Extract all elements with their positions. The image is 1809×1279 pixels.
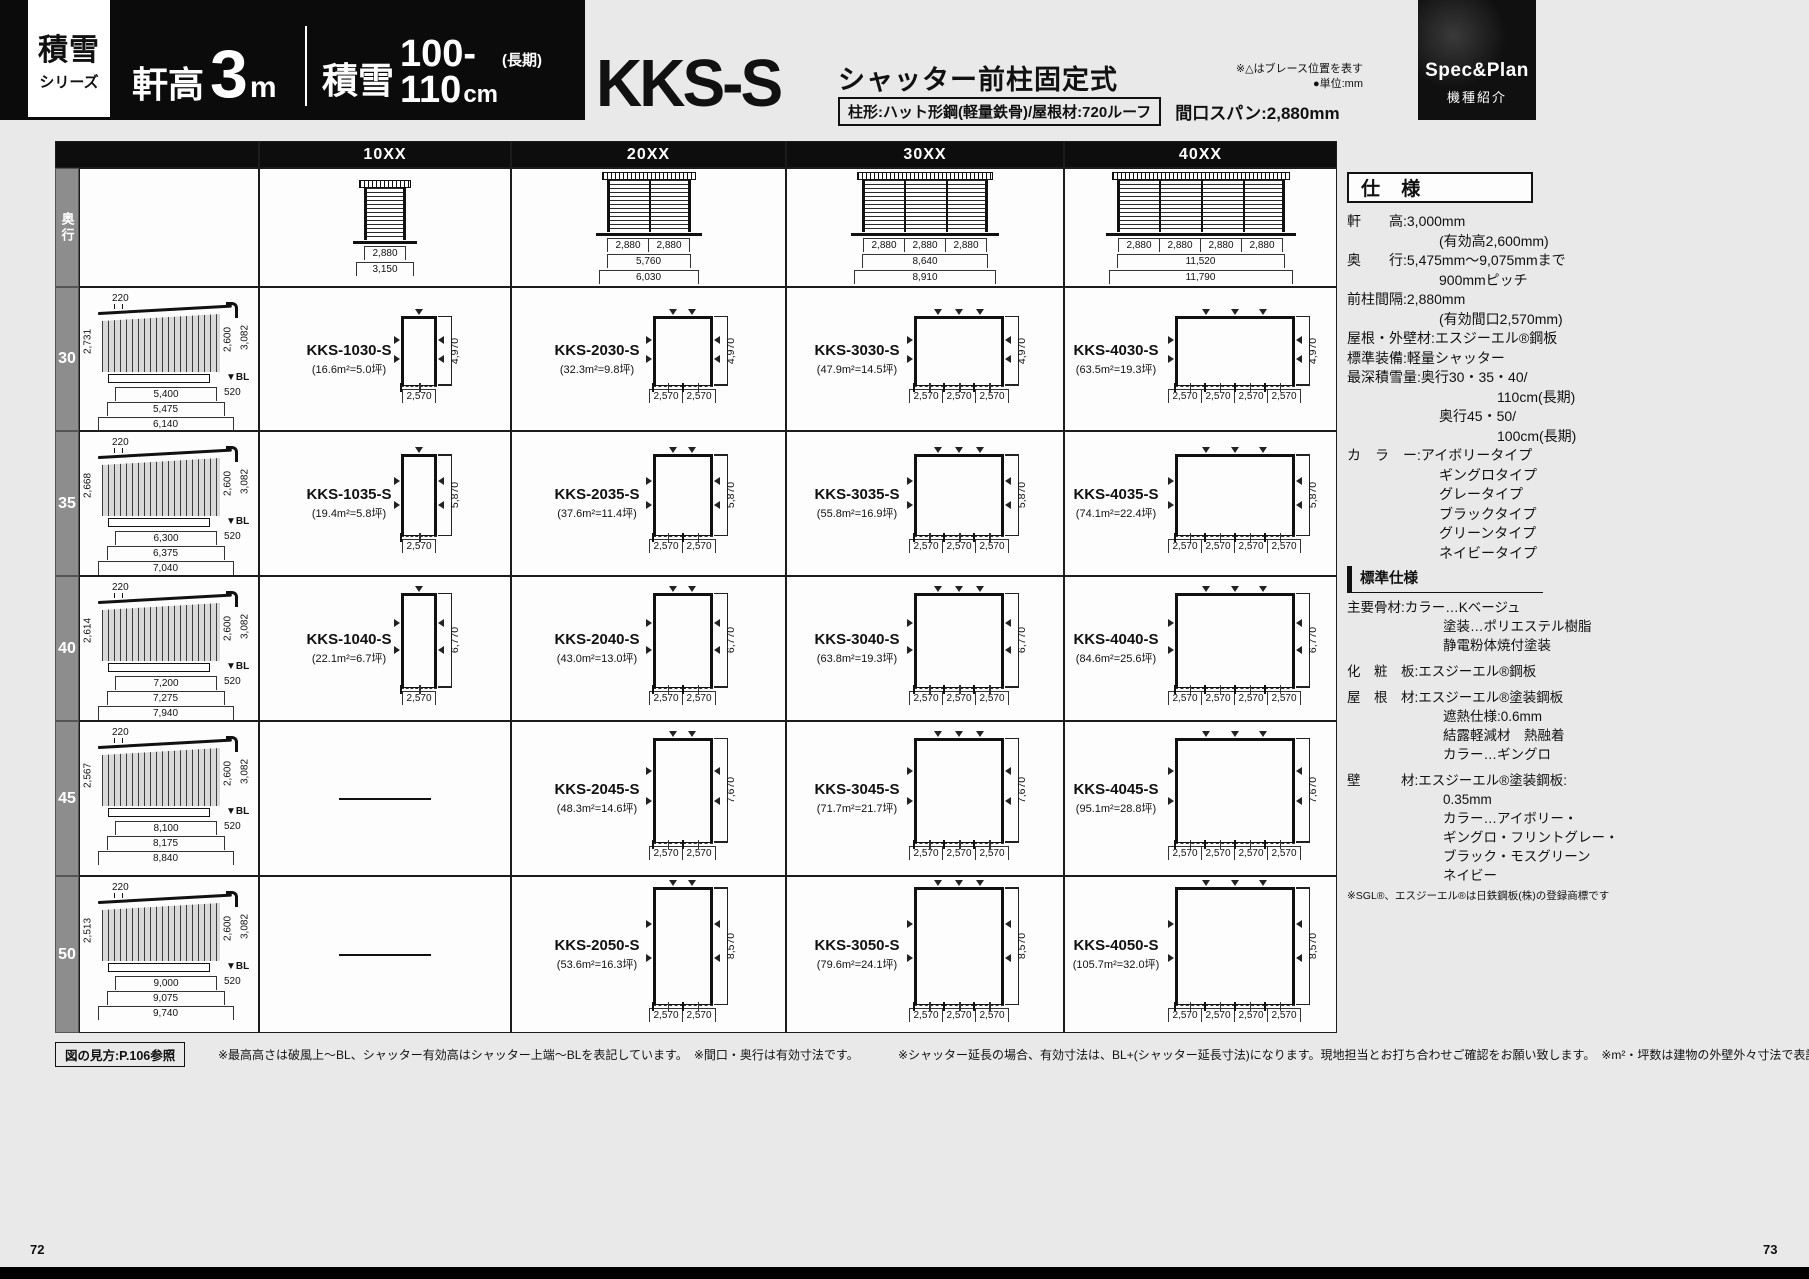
width-dim-3: 8,840	[98, 851, 234, 865]
bay-dimension: 2,880	[364, 246, 406, 260]
spec-line: 壁 材:エスジーエル®塗装鋼板:	[1347, 771, 1562, 790]
plan-depth-dimension: 8,570	[1016, 923, 1028, 969]
front-post-centerline	[944, 1005, 974, 1006]
brace-triangle-left	[646, 501, 652, 509]
brace-triangle-top	[976, 731, 984, 737]
model-name: KKS-3050-S	[811, 937, 903, 954]
spec-panel-title: 仕 様	[1347, 172, 1533, 203]
model-area: (74.1m²=22.4坪)	[1070, 505, 1162, 521]
brace-triangle-left	[1168, 619, 1174, 627]
elevation-cell-10XX: 2,880 3,150	[259, 168, 511, 287]
spec-line: 0.35mm	[1347, 790, 1562, 809]
plan-diagram: 6,770 2,570	[401, 593, 437, 705]
elevation-cell-30XX: 2,8802,8802,8808,640 8,910	[786, 168, 1064, 287]
spec-line: 遮熱仕様:0.6mm	[1347, 707, 1562, 726]
bay-dimension: 2,880	[945, 238, 987, 252]
plan-bay-dimension: 2,570	[1201, 539, 1235, 553]
bl-marker: ▼BL	[226, 372, 249, 383]
plan-bay-dimension: 2,570	[975, 846, 1009, 860]
model-label: KKS-2035-S (37.6m²=11.4坪)	[551, 486, 643, 521]
model-cell-KKS-3035-S: KKS-3035-S (55.8m²=16.9坪) 5,870 2,5702,5…	[786, 431, 1064, 576]
model-label: KKS-4050-S (105.7m²=32.0坪)	[1070, 937, 1162, 972]
model-label: KKS-4030-S (63.5m²=19.3坪)	[1070, 342, 1162, 377]
brace-triangle-left	[646, 797, 652, 805]
side-elevation-cell-50: 220 2,513 2,600 3,082 ▼BL 520 9,000 9,07…	[79, 876, 259, 1033]
max-height-dim: 3,082	[240, 607, 251, 647]
shutter-side-hatch	[102, 903, 220, 961]
plan-depth-dimension: 6,770	[449, 617, 461, 663]
ground-line	[353, 241, 417, 244]
spec-line: 塗装…ポリエステル樹脂	[1347, 617, 1562, 636]
brace-triangle-top	[688, 731, 696, 737]
brace-triangle-top	[688, 309, 696, 315]
brace-triangle-top	[976, 586, 984, 592]
front-post-centerline	[974, 843, 1004, 844]
model-area: (84.6m²=25.6坪)	[1070, 650, 1162, 666]
model-cell-KKS-1030-S: KKS-1030-S (16.6m²=5.0坪) 4,970 2,570	[259, 287, 511, 431]
brace-triangle-top	[1231, 731, 1239, 737]
brace-triangle-top	[1202, 880, 1210, 886]
plan-outline	[653, 316, 713, 386]
plan-bay-dimension: 2,570	[975, 1008, 1009, 1022]
model-label: KKS-2030-S (32.3m²=9.8坪)	[551, 342, 643, 377]
plan-bay-dimension: 2,570	[1267, 1008, 1301, 1022]
gutter-hook	[226, 302, 238, 318]
plan-bay-dimension: 2,570	[682, 1008, 716, 1022]
bl-marker: ▼BL	[226, 661, 249, 672]
model-area: (63.8m²=19.3坪)	[811, 650, 903, 666]
front-elevation-20XX: 2,8802,8805,760 6,030	[596, 172, 702, 284]
model-cell-content: KKS-4045-S (95.1m²=28.8坪) 7,670 2,5702,5…	[1065, 722, 1336, 875]
brace-triangle-left	[1168, 355, 1174, 363]
bl-marker: ▼BL	[226, 516, 249, 527]
spec-line: ネイビー	[1347, 866, 1562, 885]
width-dim-1: 9,000	[115, 976, 217, 990]
model-area: (71.7m²=21.7坪)	[811, 800, 903, 816]
front-post-centerline	[974, 536, 1004, 537]
brace-triangle-left	[646, 619, 652, 627]
elevation-cell-20XX: 2,8802,8805,760 6,030	[511, 168, 786, 287]
model-cell-KKS-2040-S: KKS-2040-S (43.0m²=13.0坪) 6,770 2,5702,5…	[511, 576, 786, 721]
brace-triangle-top	[1202, 309, 1210, 315]
no-model-dash	[339, 954, 431, 956]
width-dim-1: 7,200	[115, 676, 217, 690]
brace-triangle-left	[394, 619, 400, 627]
front-post-centerline	[401, 386, 437, 387]
standard-spec-title: 標準仕様	[1347, 566, 1543, 593]
brace-triangle-left	[1168, 336, 1174, 344]
spec-line: 奥 行:5,475mm〜9,075mmまで	[1347, 251, 1562, 271]
row-depth-label: 30	[58, 350, 76, 368]
brace-triangle-left	[1168, 646, 1174, 654]
spec-line: ネイビータイプ	[1347, 544, 1562, 564]
front-post-centerline	[1175, 843, 1205, 844]
brace-triangle-left	[646, 355, 652, 363]
model-area: (32.3m²=9.8坪)	[551, 361, 643, 377]
front-post-centerline	[1175, 386, 1205, 387]
spec-line: 奥行45・50/	[1347, 407, 1562, 427]
row-label-35: 35	[55, 431, 79, 576]
plan-depth-dimension: 5,870	[1307, 472, 1319, 518]
width-dim-1: 8,100	[115, 821, 217, 835]
model-cell-KKS-2045-S: KKS-2045-S (48.3m²=14.6坪) 7,670 2,5702,5…	[511, 721, 786, 876]
spec-line: ギングロ・フリントグレー・	[1347, 828, 1562, 847]
brace-triangle-left	[1168, 501, 1174, 509]
plan-bay-dimension: 2,570	[1201, 1008, 1235, 1022]
brace-triangle-top	[415, 586, 423, 592]
front-post-centerline	[653, 1005, 683, 1006]
brace-triangle-top	[976, 447, 984, 453]
spec-line: 主要骨材:カラー…Kベージュ	[1347, 598, 1562, 617]
spec-line: グレータイプ	[1347, 485, 1562, 505]
shutter-front	[607, 180, 691, 232]
shutter-bay	[1201, 180, 1243, 232]
front-post-centerline	[1175, 688, 1205, 689]
diagram-reference-box: 図の見方:P.106参照	[55, 1042, 185, 1067]
plan-outline	[1175, 738, 1295, 843]
plan-outline	[1175, 454, 1295, 536]
foundation	[108, 963, 210, 972]
width-dim-2: 7,275	[107, 691, 225, 705]
left-height-dim: 2,567	[83, 756, 94, 796]
spec-line: カ ラ ー:アイボリータイプ	[1347, 446, 1562, 466]
plan-outline	[914, 593, 1004, 688]
front-post-centerline	[1265, 688, 1295, 689]
shutter-front	[1117, 180, 1285, 232]
plan-bay-dimension: 2,570	[682, 691, 716, 705]
front-elevation-40XX: 2,8802,8802,8802,88011,520 11,790	[1106, 172, 1296, 284]
brace-triangle-top	[688, 586, 696, 592]
left-height-dim: 2,731	[83, 322, 94, 362]
plan-depth-dimension: 5,870	[1016, 472, 1028, 518]
plan-bay-dimension: 2,570	[1201, 691, 1235, 705]
brace-triangle-top	[934, 731, 942, 737]
front-post-centerline	[1235, 536, 1265, 537]
brace-triangle-left	[907, 954, 913, 962]
model-name: KKS-4030-S	[1070, 342, 1162, 359]
model-cell-content: KKS-1030-S (16.6m²=5.0坪) 4,970 2,570	[260, 288, 510, 430]
gutter-hook	[226, 891, 238, 907]
width-dim-2: 9,075	[107, 991, 225, 1005]
model-cell-content: KKS-2035-S (37.6m²=11.4坪) 5,870 2,5702,5…	[512, 432, 785, 575]
page-number-left: 72	[30, 1242, 44, 1257]
plan-outline	[1175, 887, 1295, 1005]
side-elevation-cell-35: 220 2,668 2,600 3,082 ▼BL 520 6,300 6,37…	[79, 431, 259, 576]
front-post-centerline	[653, 536, 683, 537]
front-post-centerline	[914, 386, 944, 387]
brace-triangle-top	[1202, 586, 1210, 592]
front-post-centerline	[944, 536, 974, 537]
shutter-side-hatch	[102, 603, 220, 661]
model-name: KKS-2050-S	[551, 937, 643, 954]
model-cell-KKS-2030-S: KKS-2030-S (32.3m²=9.8坪) 4,970 2,5702,57…	[511, 287, 786, 431]
foundation	[108, 374, 210, 383]
bay-dimension: 2,880	[1241, 238, 1283, 252]
bay-dimension: 2,880	[1200, 238, 1242, 252]
row-label-40: 40	[55, 576, 79, 721]
brace-triangle-left	[646, 477, 652, 485]
overhang-dimension: 220	[112, 882, 129, 898]
catalog-page: 積雪 シリーズ 軒高 3 m 積雪 100- 110 cm (長期) KKS-S…	[0, 0, 1809, 1279]
brace-triangle-left	[907, 797, 913, 805]
model-label: KKS-1040-S (22.1m²=6.7坪)	[303, 631, 395, 666]
plan-diagram: 5,870 2,5702,570	[649, 454, 716, 553]
row-depth-label: 45	[58, 790, 76, 808]
width-dimensions: 7,200 7,275 7,940	[80, 675, 252, 720]
model-cell-content: KKS-3030-S (47.9m²=14.5坪) 4,970 2,5702,5…	[787, 288, 1063, 430]
brace-triangle-left	[1168, 767, 1174, 775]
spec-lines: 軒 高:3,000mm(有効高2,600mm)奥 行:5,475mm〜9,075…	[1347, 212, 1562, 563]
model-name: KKS-3045-S	[811, 781, 903, 798]
spec-line: カラー…アイボリー・	[1347, 809, 1562, 828]
roof-crest	[602, 172, 696, 180]
front-post-centerline	[914, 843, 944, 844]
model-cell-content: KKS-3040-S (63.8m²=19.3坪) 6,770 2,5702,5…	[787, 577, 1063, 720]
plan-depth-dimension: 6,770	[1016, 617, 1028, 663]
brace-triangle-top	[1259, 309, 1267, 315]
model-area: (53.6m²=16.3坪)	[551, 956, 643, 972]
left-height-dim: 2,668	[83, 466, 94, 506]
spec-line: 100cm(長期)	[1347, 427, 1562, 447]
front-post-centerline	[1205, 843, 1235, 844]
standard-spec-lines: 主要骨材:カラー…Kベージュ塗装…ポリエステル樹脂静電粉体焼付塗装化 粧 板:エ…	[1347, 598, 1562, 885]
brace-triangle-top	[1202, 447, 1210, 453]
front-post-centerline	[1205, 688, 1235, 689]
model-cell-content: KKS-1040-S (22.1m²=6.7坪) 6,770 2,570	[260, 577, 510, 720]
front-post-centerline	[914, 1005, 944, 1006]
brace-triangle-top	[976, 309, 984, 315]
empty-model-cell	[259, 721, 511, 876]
brace-triangle-top	[934, 447, 942, 453]
plan-bay-dimension: 2,570	[649, 389, 683, 403]
plan-diagram: 4,970 2,5702,570	[649, 316, 716, 403]
shutter-bay	[364, 188, 406, 240]
bay-dimension: 2,880	[607, 238, 649, 252]
front-post-centerline	[1205, 386, 1235, 387]
front-post-centerline	[1235, 386, 1265, 387]
brace-triangle-left	[907, 477, 913, 485]
column-header-30XX: 30XX	[786, 141, 1064, 168]
brace-triangle-top	[669, 309, 677, 315]
model-name: KKS-2030-S	[551, 342, 643, 359]
plan-diagram: 5,870 2,570	[401, 454, 437, 553]
brace-triangle-left	[1168, 954, 1174, 962]
front-post-centerline	[914, 688, 944, 689]
plan-outline	[653, 887, 713, 1005]
plan-outline	[401, 454, 437, 536]
model-name: KKS-4040-S	[1070, 631, 1162, 648]
shutter-front	[364, 188, 406, 240]
plan-diagram: 5,870 2,5702,5702,5702,570	[1168, 454, 1301, 553]
footnote-right: ※シャッター延長の場合、有効寸法は、BL+(シャッター延長寸法)になります。現地…	[898, 1046, 1809, 1063]
spec-line: 110cm(長期)	[1347, 388, 1562, 408]
model-name: KKS-4035-S	[1070, 486, 1162, 503]
plan-bay-dimension: 2,570	[1267, 539, 1301, 553]
model-cell-KKS-3040-S: KKS-3040-S (63.8m²=19.3坪) 6,770 2,5702,5…	[786, 576, 1064, 721]
plan-bay-dimension: 2,570	[1201, 389, 1235, 403]
model-name: KKS-3040-S	[811, 631, 903, 648]
brace-triangle-left	[1168, 920, 1174, 928]
brace-triangle-left	[646, 767, 652, 775]
brace-triangle-top	[1231, 447, 1239, 453]
brace-triangle-top	[1202, 731, 1210, 737]
plan-depth-dimension: 4,970	[449, 328, 461, 374]
model-name: KKS-4045-S	[1070, 781, 1162, 798]
side-elevation-diagram: 220 2,731 2,600 3,082 ▼BL 520 5,400 5,47…	[80, 288, 258, 430]
spec-line: (有効間口2,570mm)	[1347, 310, 1562, 330]
plan-diagram: 6,770 2,5702,570	[649, 593, 716, 705]
spec-line: 屋 根 材:エスジーエル®塗装鋼板	[1347, 688, 1562, 707]
front-post-centerline	[1205, 1005, 1235, 1006]
model-name: KKS-2045-S	[551, 781, 643, 798]
trademark-note: ※SGL®、エスジーエル®は日鉄鋼板(株)の登録商標です	[1347, 888, 1609, 903]
plan-diagram: 5,870 2,5702,5702,570	[909, 454, 1009, 553]
total-dimension-1: 8,640	[862, 254, 988, 268]
row-depth-label: 35	[58, 495, 76, 513]
ground-line	[596, 233, 702, 236]
max-height-dim: 3,082	[240, 318, 251, 358]
side-elevation-cell-45: 220 2,567 2,600 3,082 ▼BL 520 8,100 8,17…	[79, 721, 259, 876]
model-cell-KKS-2035-S: KKS-2035-S (37.6m²=11.4坪) 5,870 2,5702,5…	[511, 431, 786, 576]
model-cell-KKS-3050-S: KKS-3050-S (79.6m²=24.1坪) 8,570 2,5702,5…	[786, 876, 1064, 1033]
shutter-bay	[904, 180, 946, 232]
brace-triangle-left	[907, 355, 913, 363]
brace-triangle-left	[646, 336, 652, 344]
gutter-hook	[226, 736, 238, 752]
column-header-10XX: 10XX	[259, 141, 511, 168]
front-post-centerline	[1205, 536, 1235, 537]
roof-crest	[1112, 172, 1290, 180]
roof-crest	[359, 180, 411, 188]
model-label: KKS-3050-S (79.6m²=24.1坪)	[811, 937, 903, 972]
bay-dimension: 2,880	[904, 238, 946, 252]
empty-corner-cell	[79, 168, 259, 287]
model-cell-content: KKS-2045-S (48.3m²=14.6坪) 7,670 2,5702,5…	[512, 722, 785, 875]
front-post-centerline	[974, 688, 1004, 689]
plan-depth-dimension: 6,770	[1307, 617, 1319, 663]
plan-bay-dimension: 2,570	[975, 389, 1009, 403]
plan-outline	[401, 316, 437, 386]
brace-triangle-left	[646, 920, 652, 928]
bl-marker: ▼BL	[226, 806, 249, 817]
width-dim-2: 8,175	[107, 836, 225, 850]
row-depth-label: 40	[58, 640, 76, 658]
side-elevation-diagram: 220 2,668 2,600 3,082 ▼BL 520 6,300 6,37…	[80, 432, 258, 575]
model-cell-content: KKS-4035-S (74.1m²=22.4坪) 5,870 2,5702,5…	[1065, 432, 1336, 575]
brace-triangle-left	[907, 336, 913, 344]
front-post-centerline	[653, 843, 683, 844]
model-name: KKS-4050-S	[1070, 937, 1162, 954]
brace-triangle-top	[934, 309, 942, 315]
brace-triangle-top	[669, 586, 677, 592]
front-post-centerline	[944, 843, 974, 844]
brace-triangle-top	[934, 880, 942, 886]
model-cell-content: KKS-4030-S (63.5m²=19.3坪) 4,970 2,5702,5…	[1065, 288, 1336, 430]
front-elevation-30XX: 2,8802,8802,8808,640 8,910	[851, 172, 999, 284]
brace-triangle-top	[1259, 447, 1267, 453]
front-post-centerline	[944, 386, 974, 387]
model-cell-content: KKS-4050-S (105.7m²=32.0坪) 8,570 2,5702,…	[1065, 877, 1336, 1032]
plan-depth-dimension: 4,970	[725, 328, 737, 374]
plan-diagram: 4,970 2,570	[401, 316, 437, 403]
plan-depth-dimension: 7,670	[1307, 767, 1319, 813]
plan-depth-dimension: 8,570	[1307, 923, 1319, 969]
model-area: (63.5m²=19.3坪)	[1070, 361, 1162, 377]
shutter-front	[862, 180, 988, 232]
model-cell-KKS-1035-S: KKS-1035-S (19.4m²=5.8坪) 5,870 2,570	[259, 431, 511, 576]
model-name: KKS-3035-S	[811, 486, 903, 503]
model-label: KKS-4045-S (95.1m²=28.8坪)	[1070, 781, 1162, 816]
table-corner-header	[55, 141, 259, 168]
front-post-centerline	[683, 843, 713, 844]
shutter-bay	[1243, 180, 1285, 232]
shutter-bay	[649, 180, 691, 232]
model-area: (22.1m²=6.7坪)	[303, 650, 395, 666]
shutter-height-dim: 2,600	[223, 909, 234, 949]
plan-diagram: 8,570 2,5702,5702,5702,570	[1168, 887, 1301, 1022]
brace-triangle-top	[669, 447, 677, 453]
plan-bay-dimension: 2,570	[649, 691, 683, 705]
width-dim-3: 7,040	[98, 561, 234, 575]
plan-outline	[914, 887, 1004, 1005]
brace-triangle-top	[1259, 880, 1267, 886]
plan-depth-dimension: 7,670	[725, 767, 737, 813]
spec-line: 化 粧 板:エスジーエル®鋼板	[1347, 662, 1562, 681]
column-header-40XX: 40XX	[1064, 141, 1337, 168]
spec-line: 前柱間隔:2,880mm	[1347, 290, 1562, 310]
model-area: (19.4m²=5.8坪)	[303, 505, 395, 521]
model-area: (37.6m²=11.4坪)	[551, 505, 643, 521]
brace-triangle-top	[955, 309, 963, 315]
front-post-centerline	[1265, 386, 1295, 387]
brace-triangle-left	[907, 619, 913, 627]
row-label-50: 50	[55, 876, 79, 1033]
model-label: KKS-1030-S (16.6m²=5.0坪)	[303, 342, 395, 377]
gutter-hook	[226, 446, 238, 462]
brace-triangle-top	[1259, 586, 1267, 592]
total-dimension-2: 6,030	[599, 270, 699, 284]
spec-line: カラー…ギングロ	[1347, 745, 1562, 764]
gutter-hook	[226, 591, 238, 607]
model-label: KKS-3035-S (55.8m²=16.9坪)	[811, 486, 903, 521]
plan-outline	[914, 738, 1004, 843]
model-name: KKS-1035-S	[303, 486, 395, 503]
brace-triangle-top	[415, 309, 423, 315]
plan-outline	[653, 454, 713, 536]
shutter-height-dim: 2,600	[223, 320, 234, 360]
total-dimension-2: 3,150	[356, 262, 414, 276]
no-model-dash	[339, 798, 431, 800]
model-name: KKS-1040-S	[303, 631, 395, 648]
spec-line: 静電粉体焼付塗装	[1347, 636, 1562, 655]
total-dimension-2: 11,790	[1109, 270, 1293, 284]
model-cell-KKS-4040-S: KKS-4040-S (84.6m²=25.6坪) 6,770 2,5702,5…	[1064, 576, 1337, 721]
plan-diagram: 8,570 2,5702,5702,570	[909, 887, 1009, 1022]
model-area: (55.8m²=16.9坪)	[811, 505, 903, 521]
model-cell-content: KKS-2030-S (32.3m²=9.8坪) 4,970 2,5702,57…	[512, 288, 785, 430]
plan-outline	[1175, 593, 1295, 688]
plan-bay-dimension: 2,570	[975, 691, 1009, 705]
width-dim-2: 5,475	[107, 402, 225, 416]
model-area: (47.9m²=14.5坪)	[811, 361, 903, 377]
plan-bay-dimension: 2,570	[682, 389, 716, 403]
side-elevation-diagram: 220 2,513 2,600 3,082 ▼BL 520 9,000 9,07…	[80, 877, 258, 1032]
overhang-dimension: 220	[112, 727, 129, 743]
model-area: (16.6m²=5.0坪)	[303, 361, 395, 377]
brace-triangle-left	[1168, 797, 1174, 805]
model-area: (105.7m²=32.0坪)	[1070, 956, 1162, 972]
front-post-centerline	[1265, 1005, 1295, 1006]
